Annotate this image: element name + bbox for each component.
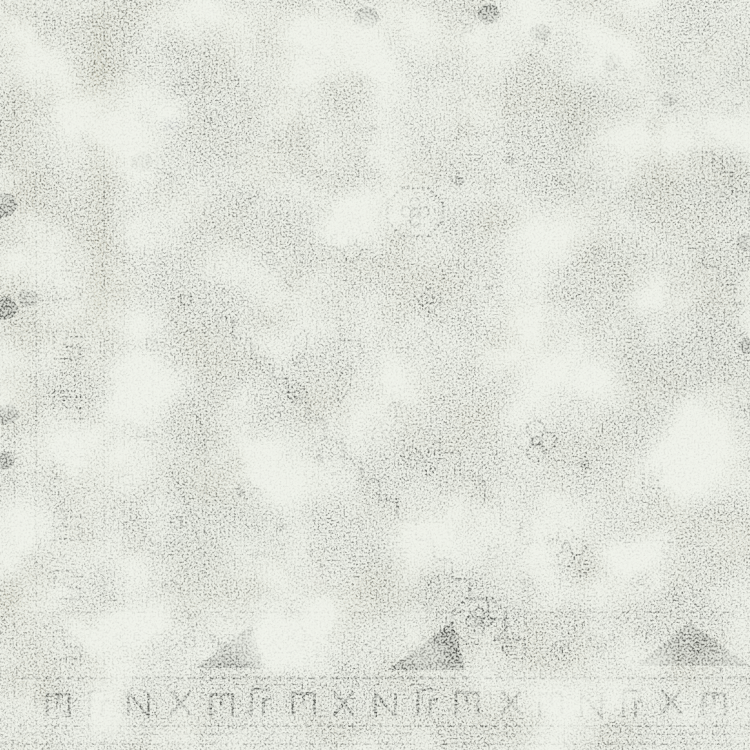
- rug-image: [0, 0, 750, 750]
- fine-speckle-overlay: [0, 0, 750, 750]
- vintage-rug-photo: [0, 0, 750, 750]
